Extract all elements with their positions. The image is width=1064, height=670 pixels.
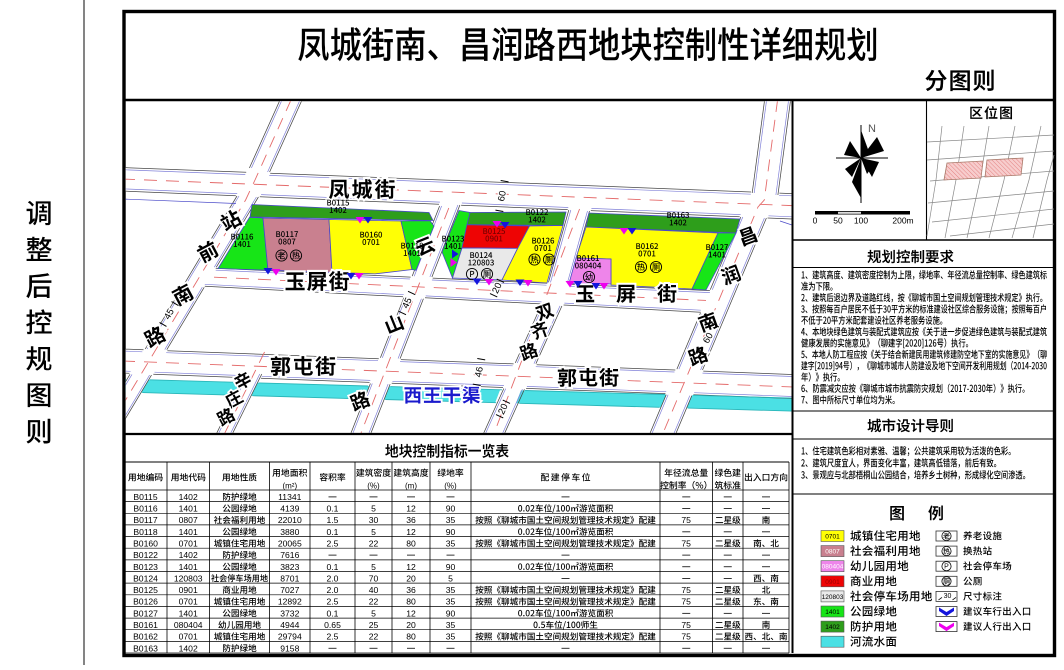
svg-text:80: 80 (406, 539, 416, 549)
svg-text:0701: 0701 (825, 534, 840, 541)
svg-text:1402: 1402 (179, 643, 198, 653)
svg-text:36: 36 (406, 515, 416, 525)
svg-text:29794: 29794 (278, 632, 302, 642)
svg-text:0: 0 (813, 216, 818, 226)
svg-text:2.0: 2.0 (327, 573, 339, 583)
svg-text:1401: 1401 (179, 562, 198, 572)
svg-text:B0126: B0126 (133, 597, 158, 607)
svg-text:36: 36 (406, 585, 416, 595)
svg-text:5: 5 (371, 504, 376, 514)
svg-text:0807: 0807 (825, 549, 840, 556)
svg-text:40: 40 (369, 585, 379, 595)
svg-text:(m): (m) (405, 482, 417, 491)
svg-text:100: 100 (854, 216, 868, 226)
svg-text:35: 35 (446, 620, 456, 630)
svg-text:75: 75 (681, 515, 691, 525)
svg-text:0.1: 0.1 (327, 608, 339, 618)
svg-text:200m: 200m (892, 216, 913, 226)
svg-text:0901: 0901 (825, 579, 840, 586)
svg-text:B0122: B0122 (133, 550, 158, 560)
svg-text:12: 12 (406, 504, 416, 514)
svg-text:35: 35 (446, 539, 456, 549)
svg-text:P: P (944, 564, 949, 571)
svg-text:1402: 1402 (179, 550, 198, 560)
svg-text:5: 5 (371, 562, 376, 572)
svg-text:22: 22 (369, 597, 379, 607)
svg-text:12: 12 (406, 608, 416, 618)
svg-text:0807: 0807 (179, 515, 198, 525)
svg-text:12: 12 (406, 562, 416, 572)
svg-text:B0117: B0117 (133, 515, 157, 525)
svg-text:22: 22 (369, 632, 379, 642)
svg-text:(%): (%) (444, 482, 457, 491)
svg-text:75: 75 (681, 585, 691, 595)
svg-text:120803: 120803 (822, 594, 844, 601)
svg-text:B0125: B0125 (133, 585, 158, 595)
svg-text:35: 35 (446, 597, 456, 607)
svg-text:3823: 3823 (280, 562, 299, 572)
svg-text:0901: 0901 (179, 585, 198, 595)
svg-text:5: 5 (371, 527, 376, 537)
svg-text:4139: 4139 (280, 504, 299, 514)
svg-text:B0115: B0115 (133, 492, 157, 502)
svg-text:35: 35 (446, 585, 456, 595)
svg-text:22: 22 (369, 539, 379, 549)
svg-text:080404: 080404 (174, 620, 203, 630)
svg-text:B0160: B0160 (133, 539, 158, 549)
svg-text:B0118: B0118 (133, 527, 157, 537)
svg-text:2.0: 2.0 (327, 585, 339, 595)
svg-text:B0163: B0163 (133, 643, 158, 653)
svg-text:0.65: 0.65 (324, 620, 341, 630)
svg-text:5: 5 (448, 573, 453, 583)
svg-text:3732: 3732 (280, 608, 299, 618)
svg-text:90: 90 (446, 527, 456, 537)
svg-text:B0123: B0123 (133, 562, 158, 572)
svg-text:9158: 9158 (280, 643, 299, 653)
svg-text:2.5: 2.5 (327, 539, 339, 549)
svg-text:120803: 120803 (174, 573, 203, 583)
svg-text:20: 20 (406, 573, 416, 583)
svg-text:4944: 4944 (280, 620, 299, 630)
svg-text:0.1: 0.1 (327, 527, 339, 537)
svg-text:90: 90 (446, 504, 456, 514)
svg-text:12892: 12892 (278, 597, 302, 607)
svg-text:1402: 1402 (825, 624, 840, 631)
svg-text:B0116: B0116 (133, 504, 157, 514)
svg-text:20065: 20065 (278, 539, 302, 549)
svg-text:70: 70 (369, 573, 379, 583)
svg-text:35: 35 (446, 632, 456, 642)
svg-text:90: 90 (446, 608, 456, 618)
svg-text:90: 90 (446, 562, 456, 572)
svg-text:0701: 0701 (179, 539, 198, 549)
svg-text:0701: 0701 (179, 632, 198, 642)
svg-text:25: 25 (369, 620, 379, 630)
svg-text:1401: 1401 (179, 527, 198, 537)
svg-text:(m²): (m²) (282, 482, 297, 491)
svg-text:3880: 3880 (280, 527, 299, 537)
svg-text:60: 60 (496, 190, 509, 202)
svg-text:20: 20 (406, 620, 416, 630)
svg-text:75: 75 (681, 597, 691, 607)
svg-text:080404: 080404 (822, 564, 844, 571)
svg-text:1.5: 1.5 (327, 515, 339, 525)
svg-text:75: 75 (681, 539, 691, 549)
svg-text:2.5: 2.5 (327, 632, 339, 642)
svg-text:46: 46 (473, 366, 486, 378)
svg-text:B0162: B0162 (133, 632, 158, 642)
svg-text:0.1: 0.1 (327, 504, 339, 514)
svg-text:5: 5 (371, 608, 376, 618)
svg-text:B0127: B0127 (133, 608, 158, 618)
svg-text:N: N (868, 123, 876, 135)
svg-text:75: 75 (681, 620, 691, 630)
svg-text:22010: 22010 (278, 515, 302, 525)
svg-text:0.1: 0.1 (327, 562, 339, 572)
svg-text:12: 12 (406, 527, 416, 537)
svg-text:80: 80 (406, 632, 416, 642)
svg-text:2.5: 2.5 (327, 597, 339, 607)
svg-text:11341: 11341 (278, 492, 301, 502)
svg-text:8701: 8701 (280, 573, 299, 583)
svg-text:7027: 7027 (280, 585, 299, 595)
svg-text:B0124: B0124 (133, 573, 158, 583)
svg-text:B0161: B0161 (133, 620, 158, 630)
svg-text:80: 80 (406, 597, 416, 607)
svg-text:30: 30 (369, 515, 379, 525)
svg-text:1401: 1401 (179, 504, 198, 514)
svg-text:30: 30 (944, 593, 952, 600)
svg-text:1402: 1402 (179, 492, 198, 502)
svg-text:75: 75 (681, 632, 691, 642)
svg-text:35: 35 (446, 515, 456, 525)
svg-text:0701: 0701 (179, 597, 198, 607)
svg-text:7616: 7616 (280, 550, 299, 560)
svg-text:1401: 1401 (825, 609, 840, 616)
svg-text:1401: 1401 (179, 608, 198, 618)
svg-text:50: 50 (833, 216, 843, 226)
svg-text:(%): (%) (367, 482, 380, 491)
